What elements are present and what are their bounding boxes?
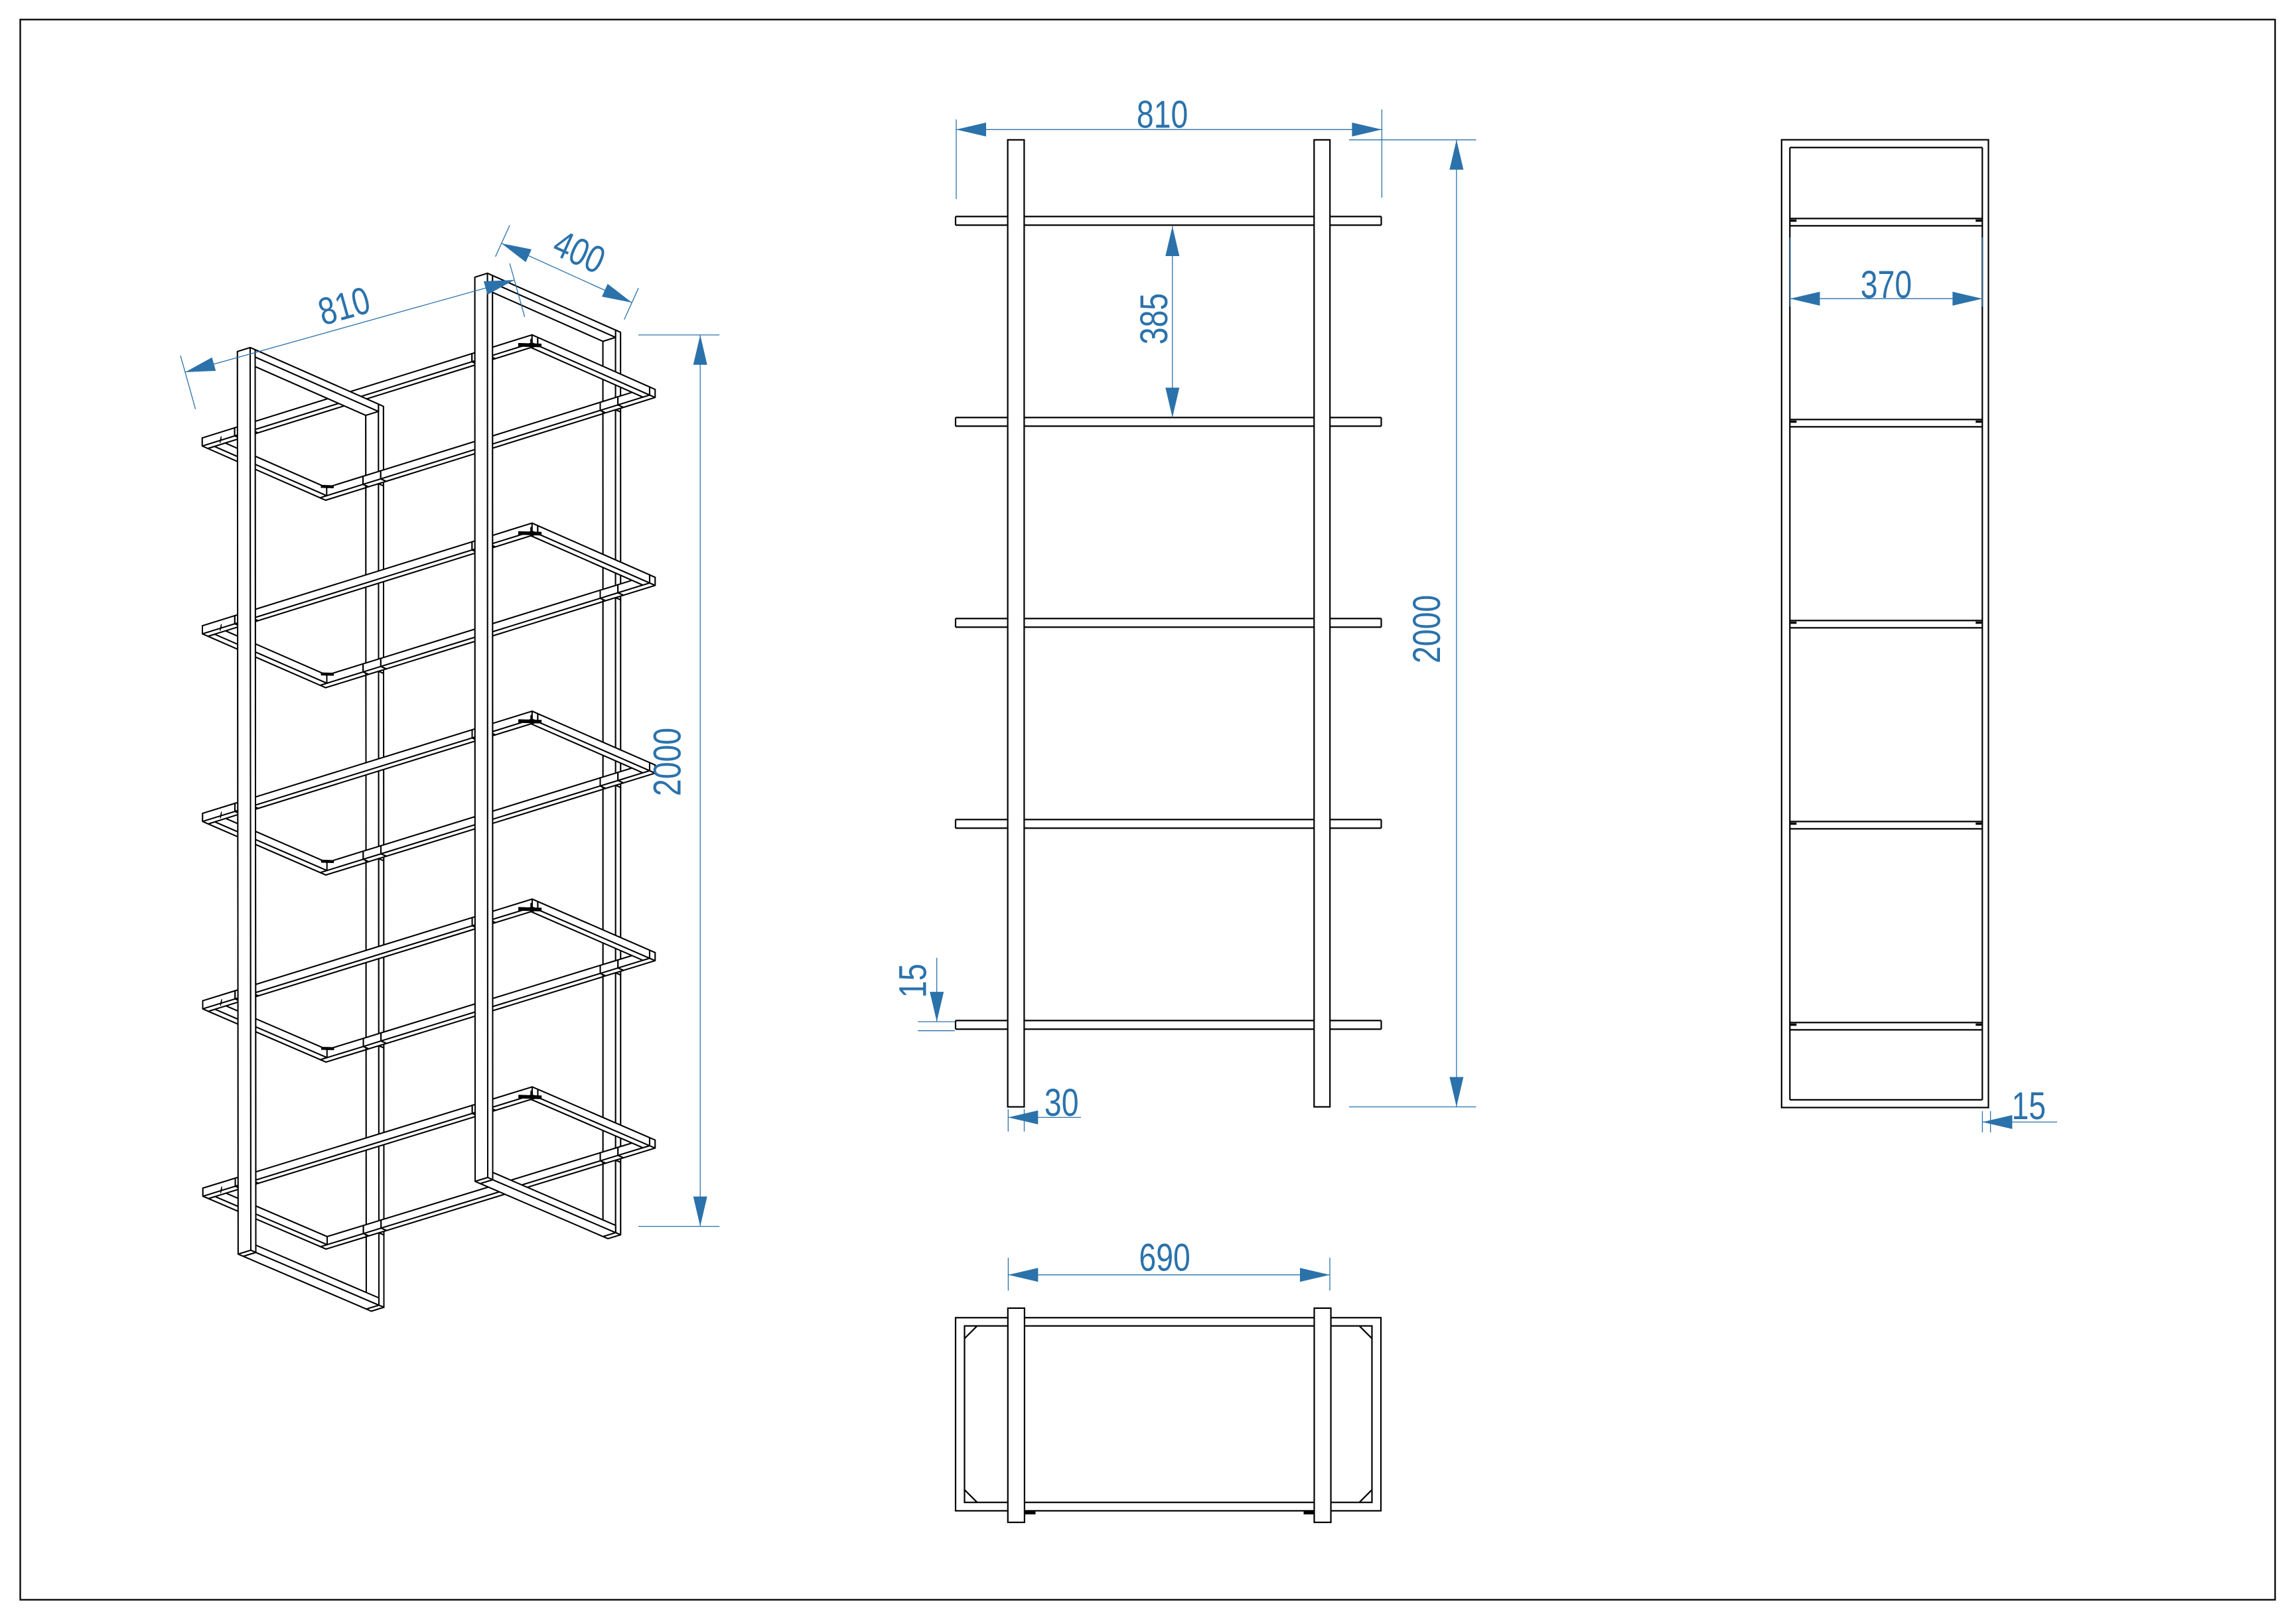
svg-text:2000: 2000 xyxy=(1405,595,1449,663)
svg-text:15: 15 xyxy=(892,964,935,998)
svg-text:2000: 2000 xyxy=(646,728,689,796)
svg-text:15: 15 xyxy=(2012,1085,2046,1128)
svg-text:385: 385 xyxy=(1133,293,1176,344)
svg-text:810: 810 xyxy=(1137,94,1188,137)
svg-text:30: 30 xyxy=(1044,1081,1079,1124)
svg-text:690: 690 xyxy=(1139,1236,1190,1279)
svg-text:370: 370 xyxy=(1861,263,1912,306)
